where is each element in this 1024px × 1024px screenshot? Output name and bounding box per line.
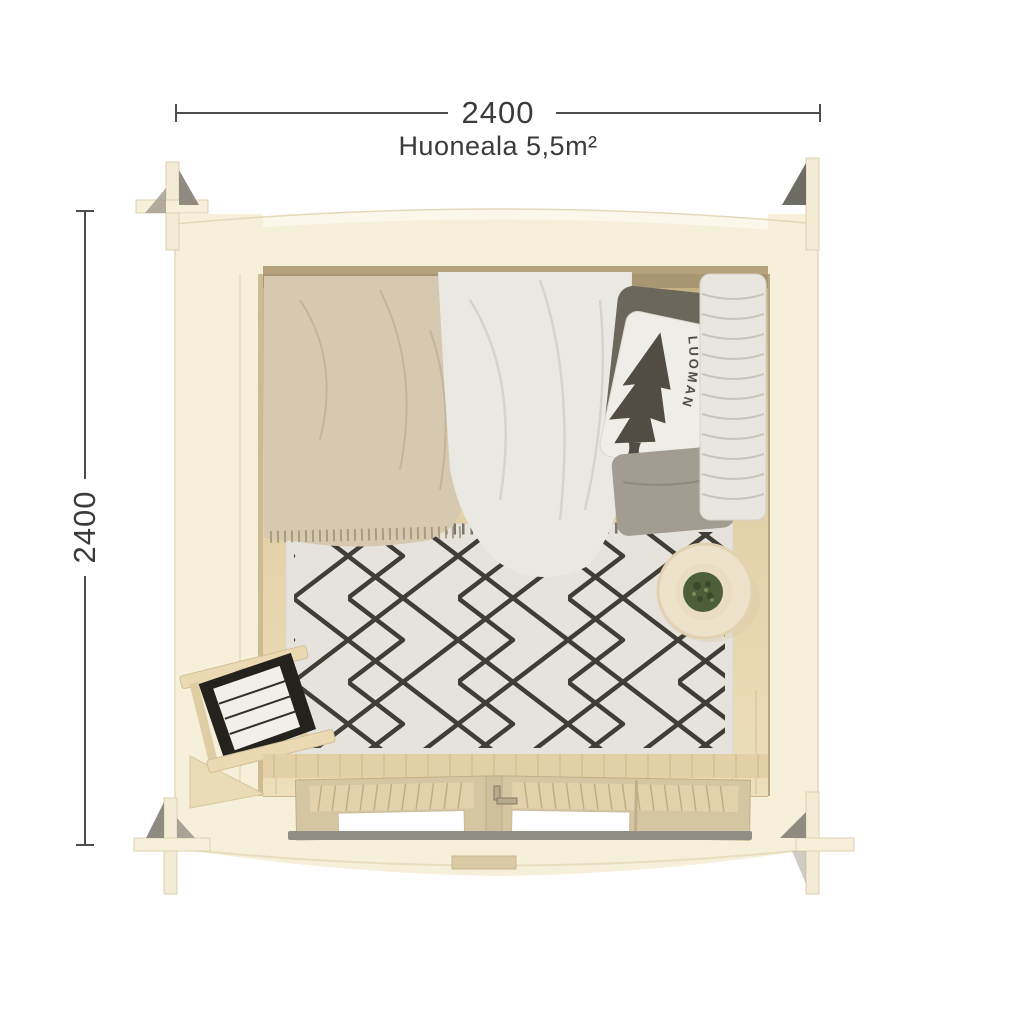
door-right-mullion bbox=[635, 780, 636, 836]
floorplan-page: 2400 Huoneala 5,5m² 2400 bbox=[0, 0, 1024, 1024]
quilted-mattress-roll bbox=[700, 274, 766, 520]
door-right bbox=[499, 776, 750, 840]
plant bbox=[683, 572, 723, 612]
cabin-floorplan: LUOMAN bbox=[0, 0, 1024, 1024]
door-threshold-bar bbox=[288, 831, 752, 840]
entrance bbox=[263, 754, 768, 840]
door-right-window bbox=[512, 810, 630, 834]
wall-right bbox=[768, 214, 818, 847]
door-left bbox=[295, 776, 488, 840]
door-center-stile bbox=[486, 776, 502, 838]
door-threshold-tab bbox=[452, 856, 516, 869]
